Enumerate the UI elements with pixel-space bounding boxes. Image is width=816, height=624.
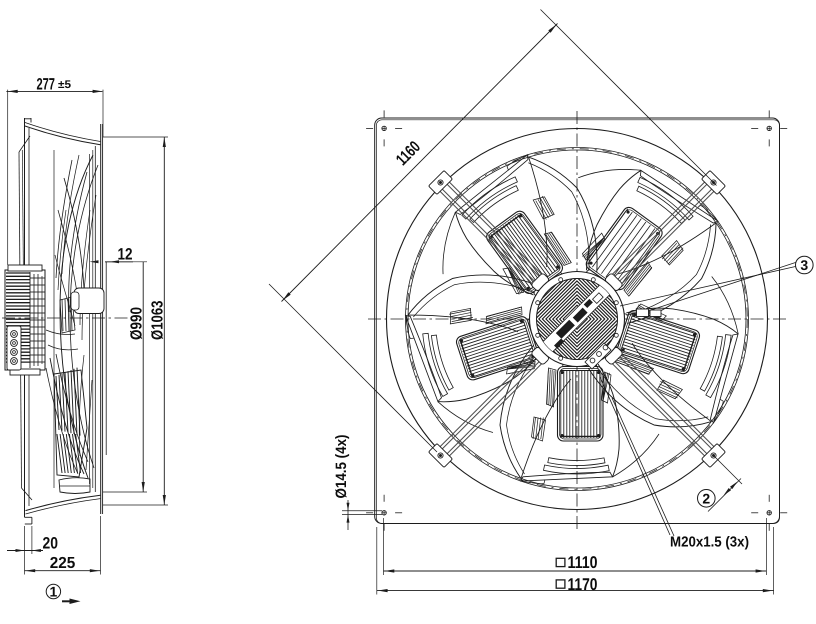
svg-text:225: 225 — [50, 555, 76, 572]
svg-text:277: 277 — [36, 75, 55, 93]
svg-text:Ø1063: Ø1063 — [150, 300, 167, 340]
svg-text:Ø14.5 (4x): Ø14.5 (4x) — [333, 435, 350, 499]
svg-text:1170: 1170 — [568, 575, 598, 594]
svg-text:20: 20 — [43, 534, 59, 552]
svg-text:1: 1 — [50, 584, 58, 600]
svg-text:M20x1.5 (3x): M20x1.5 (3x) — [670, 534, 749, 550]
svg-text:3: 3 — [800, 257, 808, 273]
svg-text:12: 12 — [118, 246, 133, 264]
svg-text:Ø990: Ø990 — [129, 307, 146, 340]
svg-text:±5: ±5 — [58, 79, 71, 91]
svg-text:1110: 1110 — [568, 553, 598, 572]
svg-text:2: 2 — [702, 491, 710, 507]
